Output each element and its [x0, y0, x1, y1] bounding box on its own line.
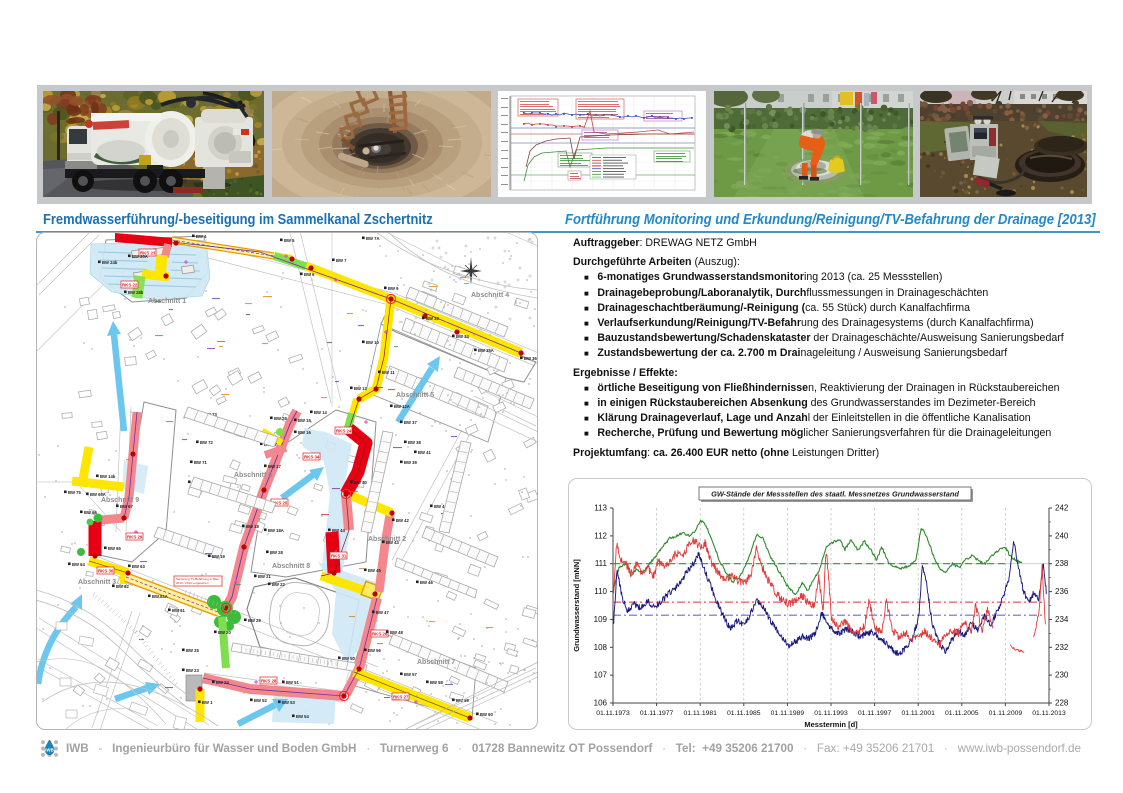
svg-text:108: 108 [594, 643, 608, 652]
svg-text:Abschnitt 3: Abschnitt 3 [78, 579, 116, 586]
svg-text:BW 42: BW 42 [396, 518, 409, 523]
svg-text:BW 43: BW 43 [386, 540, 399, 545]
svg-text:BW 10: BW 10 [366, 340, 379, 345]
svg-text:BW 9: BW 9 [388, 286, 399, 291]
svg-text:BW 65: BW 65 [108, 546, 121, 551]
svg-text:BW 12: BW 12 [354, 386, 367, 391]
svg-text:BW 72: BW 72 [200, 440, 213, 445]
svg-text:106: 106 [594, 699, 608, 708]
svg-text:BW 12A: BW 12A [394, 404, 410, 409]
svg-text:107: 107 [594, 671, 608, 680]
svg-text:01.11.1997: 01.11.1997 [858, 710, 892, 717]
svg-text:BW 28: BW 28 [270, 550, 283, 555]
svg-text:BW 62: BW 62 [116, 584, 129, 589]
svg-text:BW 57: BW 57 [404, 672, 417, 677]
svg-text:234: 234 [1055, 615, 1069, 624]
svg-text:Abschnitt 9: Abschnitt 9 [101, 497, 139, 504]
svg-text:BW 1: BW 1 [202, 700, 213, 705]
svg-text:112: 112 [594, 531, 607, 540]
svg-text:RKS 22: RKS 22 [122, 283, 138, 288]
svg-text:BW 4: BW 4 [196, 234, 207, 239]
svg-text:RKS 24: RKS 24 [336, 429, 352, 434]
svg-text:BW 16: BW 16 [298, 430, 311, 435]
svg-text:01.11.1977: 01.11.1977 [640, 710, 674, 717]
svg-text:2013 / 2014 vorgesehen: 2013 / 2014 vorgesehen [176, 581, 209, 585]
svg-text:Abschnitt 4: Abschnitt 4 [471, 292, 509, 299]
svg-text:BW 18: BW 18 [246, 524, 259, 529]
svg-text:RKS 34: RKS 34 [304, 455, 320, 460]
svg-text:01.11.1989: 01.11.1989 [771, 710, 805, 717]
svg-text:BW 50: BW 50 [342, 656, 355, 661]
svg-text:RKS 29: RKS 29 [127, 535, 143, 540]
svg-text:111: 111 [595, 559, 608, 568]
svg-text:BW 18A: BW 18A [268, 528, 284, 533]
svg-text:BW 14b: BW 14b [100, 474, 116, 479]
svg-text:BW 7A: BW 7A [366, 236, 380, 241]
svg-text:BW 36: BW 36 [524, 356, 537, 361]
svg-text:BW 24b: BW 24b [102, 260, 118, 265]
svg-text:BW 6: BW 6 [304, 272, 315, 277]
svg-text:BW 56: BW 56 [368, 648, 381, 653]
svg-text:Messtermin [d]: Messtermin [d] [804, 720, 858, 729]
svg-text:BW 29: BW 29 [248, 618, 261, 623]
svg-text:109: 109 [594, 615, 608, 624]
svg-text:110: 110 [594, 587, 607, 596]
svg-text:Abschnitt 8: Abschnitt 8 [272, 563, 310, 570]
svg-text:01.11.2005: 01.11.2005 [945, 710, 979, 717]
svg-text:RKS 26: RKS 26 [372, 632, 388, 637]
svg-text:IWB: IWB [45, 747, 55, 752]
svg-text:BW 65A: BW 65A [90, 492, 106, 497]
svg-text:BW 60: BW 60 [480, 712, 493, 717]
svg-text:113: 113 [594, 504, 607, 513]
svg-text:BW 33: BW 33 [426, 316, 439, 321]
svg-text:BW 48: BW 48 [390, 630, 403, 635]
svg-text:BW 51: BW 51 [286, 680, 299, 685]
svg-text:Abschnitt 5: Abschnitt 5 [396, 392, 434, 399]
svg-text:BW 34: BW 34 [456, 334, 469, 339]
svg-text:BW 61A: BW 61A [152, 594, 168, 599]
svg-text:01.11.1993: 01.11.1993 [814, 710, 848, 717]
svg-text:BW 44: BW 44 [332, 528, 345, 533]
svg-text:Abschnitt 7: Abschnitt 7 [417, 659, 455, 666]
svg-text:BW 38: BW 38 [408, 440, 421, 445]
svg-text:BW 47: BW 47 [376, 610, 389, 615]
svg-text:RKS 31: RKS 31 [331, 554, 347, 559]
svg-text:240: 240 [1055, 531, 1069, 540]
svg-text:BW 39: BW 39 [404, 460, 417, 465]
svg-text:BW 52: BW 52 [254, 698, 267, 703]
svg-text:Grundwasserstand [mNN]: Grundwasserstand [mNN] [572, 559, 581, 652]
svg-text:BW 58: BW 58 [430, 680, 443, 685]
svg-text:BW 24: BW 24 [216, 680, 229, 685]
svg-text:GW-Stände der Messstellen des: GW-Stände der Messstellen des staatl. Me… [711, 490, 959, 499]
svg-text:BW 61: BW 61 [172, 608, 185, 613]
svg-text:BW 17: BW 17 [268, 464, 281, 469]
svg-text:BW 5: BW 5 [284, 238, 295, 243]
svg-text:BW 20A: BW 20A [132, 254, 148, 259]
svg-text:BW 23: BW 23 [186, 668, 199, 673]
svg-text:BW 66: BW 66 [84, 510, 97, 515]
svg-text:RKS 30: RKS 30 [98, 569, 114, 574]
svg-text:BW 40: BW 40 [354, 480, 367, 485]
svg-text:BW 45: BW 45 [368, 568, 381, 573]
svg-text:BW 7: BW 7 [336, 258, 347, 263]
svg-text:BW 53: BW 53 [282, 700, 295, 705]
svg-text:BW 26: BW 26 [274, 416, 287, 421]
svg-text:228: 228 [1055, 699, 1069, 708]
svg-text:01.11.1981: 01.11.1981 [683, 710, 717, 717]
svg-text:01.11.2001: 01.11.2001 [901, 710, 935, 717]
svg-text:BW 21: BW 21 [258, 574, 271, 579]
svg-text:BW 25: BW 25 [186, 648, 199, 653]
svg-text:01.11.2009: 01.11.2009 [989, 710, 1023, 717]
svg-text:01.11.1973: 01.11.1973 [596, 710, 630, 717]
svg-text:01.11.1985: 01.11.1985 [727, 710, 761, 717]
svg-text:01.11.2013: 01.11.2013 [1032, 710, 1066, 717]
svg-text:BW 64: BW 64 [72, 562, 85, 567]
svg-text:BW 15: BW 15 [298, 418, 311, 423]
svg-text:BW 20: BW 20 [218, 630, 231, 635]
svg-text:BW 14: BW 14 [314, 410, 327, 415]
svg-text:238: 238 [1055, 559, 1069, 568]
svg-text:BW 54: BW 54 [296, 714, 309, 719]
svg-text:BW 19: BW 19 [212, 554, 225, 559]
svg-text:236: 236 [1055, 587, 1069, 596]
svg-text:232: 232 [1055, 643, 1069, 652]
svg-text:BW 75: BW 75 [68, 490, 81, 495]
svg-text:BW 67: BW 67 [120, 504, 133, 509]
svg-text:230: 230 [1055, 671, 1069, 680]
svg-text:Abschnitt 1: Abschnitt 1 [148, 298, 186, 305]
svg-text:Abschnitt 6: Abschnitt 6 [234, 472, 272, 479]
svg-text:242: 242 [1055, 504, 1069, 513]
svg-text:BW 28b: BW 28b [128, 290, 144, 295]
svg-text:BW 22: BW 22 [272, 582, 285, 587]
svg-text:BW 37: BW 37 [404, 420, 417, 425]
svg-text:BW 35A: BW 35A [478, 348, 494, 353]
svg-text:RKS 28: RKS 28 [261, 679, 277, 684]
svg-text:BW 41: BW 41 [418, 450, 431, 455]
svg-text:BW 71: BW 71 [194, 460, 207, 465]
svg-text:BW 11: BW 11 [382, 370, 395, 375]
svg-text:BW 63: BW 63 [132, 564, 145, 569]
svg-text:RKS 27: RKS 27 [393, 695, 409, 700]
